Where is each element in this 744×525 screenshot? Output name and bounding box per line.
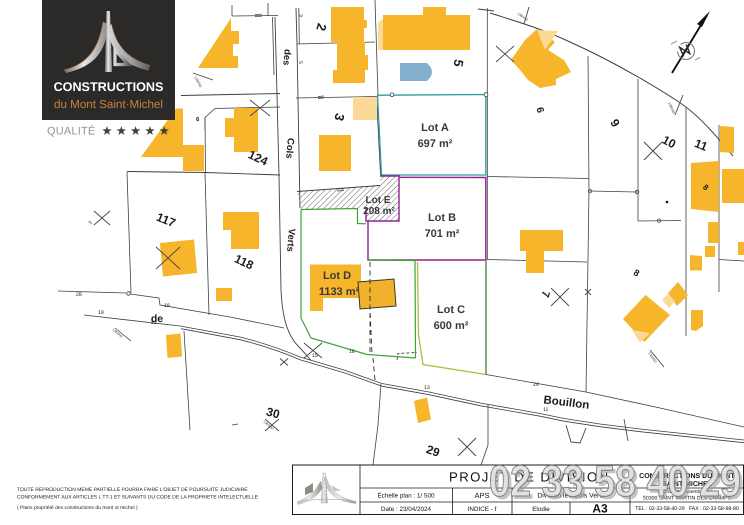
svg-text:TOUTE REPRODUCTION MEME PARTIE: TOUTE REPRODUCTION MEME PARTIELLE POURRA… [17, 487, 248, 493]
svg-text:★: ★ [116, 124, 127, 138]
svg-text:11: 11 [543, 407, 548, 413]
svg-text:697 m²: 697 m² [418, 138, 453, 150]
svg-text:du Mont Saint·Michel: du Mont Saint·Michel [54, 98, 163, 111]
svg-text:★: ★ [144, 124, 155, 138]
svg-text:1133 m²: 1133 m² [319, 286, 360, 298]
svg-text:Lot C: Lot C [437, 304, 465, 316]
svg-text:des: des [280, 49, 292, 66]
svg-text:Lot A: Lot A [421, 122, 449, 134]
svg-text:Verts: Verts [284, 228, 297, 252]
svg-text:13: 13 [424, 385, 430, 391]
svg-text:Lot D: Lot D [323, 270, 351, 282]
svg-text:24: 24 [533, 382, 539, 388]
svg-text:Échelle plan : 1/ 500: Échelle plan : 1/ 500 [377, 492, 435, 500]
svg-text:QUALITÉ: QUALITÉ [47, 125, 95, 138]
svg-text:02 33 58 40 29: 02 33 58 40 29 [489, 457, 741, 506]
svg-text:CONSTRUCTIONS: CONSTRUCTIONS [54, 80, 164, 94]
svg-text:CONFORMEMENT AUX ARTICLES L TT: CONFORMEMENT AUX ARTICLES L TT-1 ET SUIV… [17, 495, 259, 501]
svg-text:★: ★ [130, 124, 141, 138]
svg-text:208 m²: 208 m² [363, 206, 395, 217]
svg-text:★: ★ [101, 124, 112, 138]
svg-text:16: 16 [349, 349, 355, 355]
svg-text:APS: APS [474, 491, 489, 500]
svg-text:5: 5 [297, 61, 303, 64]
svg-text:★: ★ [159, 124, 170, 138]
svg-text:Lot E: Lot E [366, 195, 391, 206]
svg-text:19: 19 [98, 310, 104, 316]
svg-text:22: 22 [151, 320, 157, 326]
svg-text:28: 28 [76, 292, 82, 298]
svg-text:701 m²: 701 m² [425, 228, 460, 240]
svg-text:15: 15 [312, 353, 318, 359]
svg-text:600 m²: 600 m² [434, 320, 469, 332]
svg-text:Date : 23/04/2024: Date : 23/04/2024 [381, 506, 432, 513]
svg-text:( Plans propriété des construc: ( Plans propriété des constructions du m… [17, 505, 138, 511]
svg-text:18: 18 [164, 303, 170, 309]
svg-text:Lot B: Lot B [428, 212, 456, 224]
svg-text:Cols: Cols [283, 137, 296, 158]
svg-text:3: 3 [297, 14, 303, 17]
